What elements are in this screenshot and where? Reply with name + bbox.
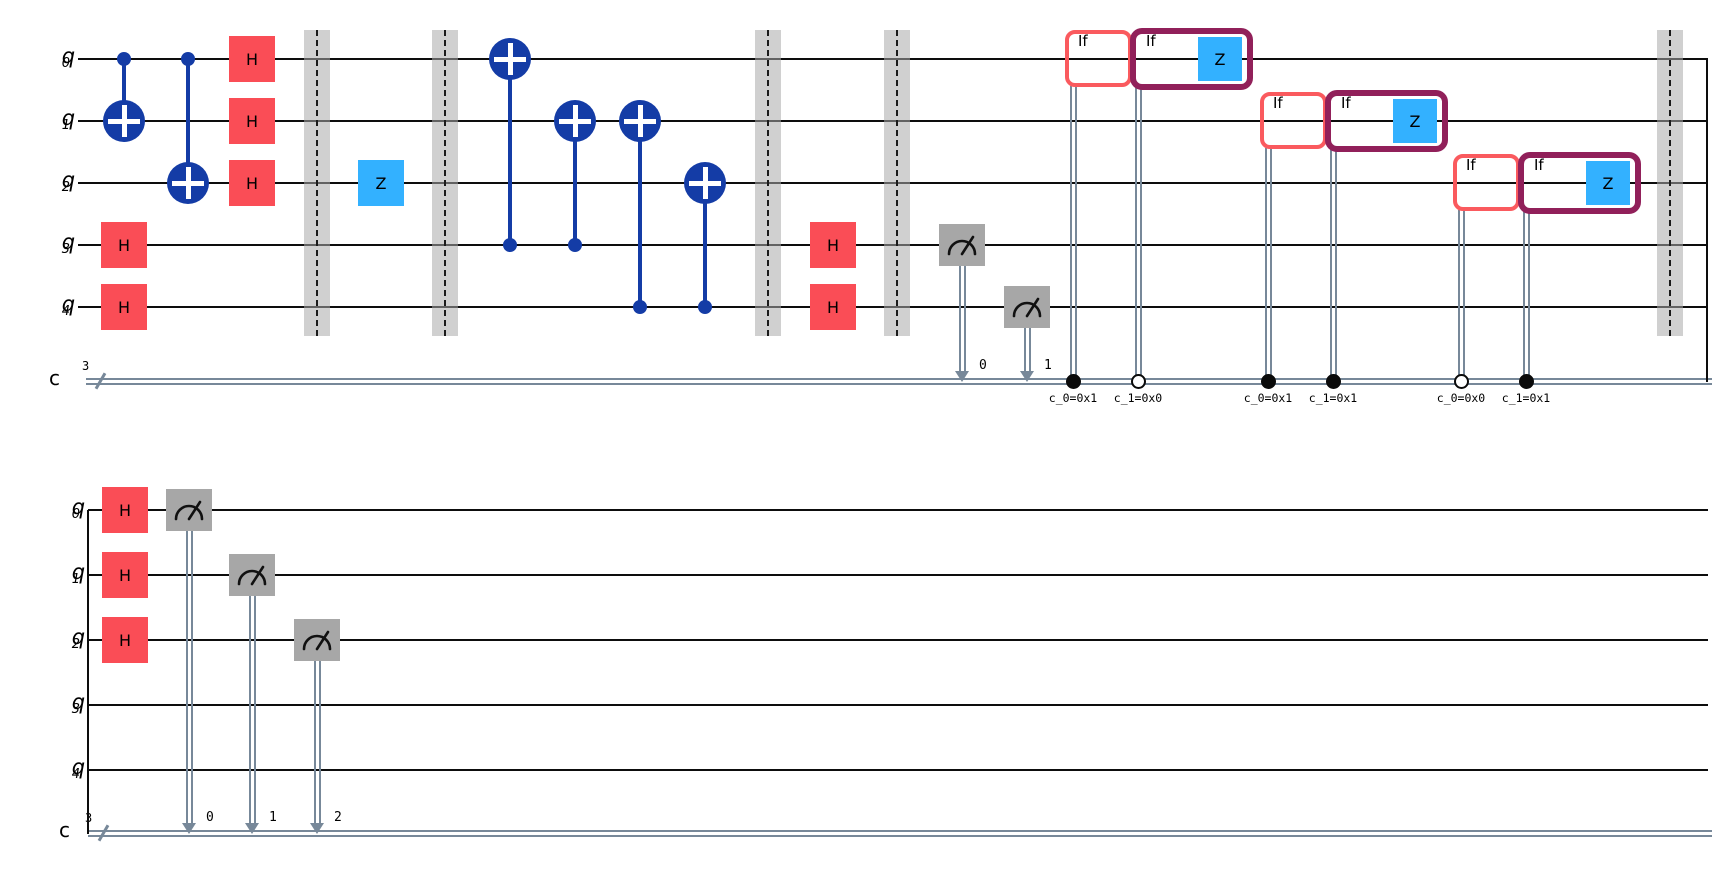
classical-label: c [12, 366, 60, 390]
measure-icon [229, 554, 275, 596]
measure-icon [1004, 286, 1050, 328]
measure-bit-label: 2 [334, 810, 342, 825]
cx-target-plus-v [638, 105, 643, 137]
classical-control-wire [1330, 150, 1337, 384]
if-box-outer [1260, 92, 1327, 149]
classical-label: c [22, 818, 70, 842]
if-label: If [1078, 32, 1088, 50]
barrier-dashed-line [1669, 30, 1671, 336]
cx-connector [508, 59, 513, 245]
qubit-label-sub: 1 [62, 118, 70, 133]
classical-control-wire [1523, 212, 1530, 384]
condition-label: c_0=0x1 [1049, 391, 1097, 405]
fold-line [87, 510, 89, 834]
condition-dot-filled [1519, 374, 1534, 389]
measure-gate [294, 619, 340, 661]
h-gate: H [229, 36, 275, 82]
measure-gate [1004, 286, 1050, 328]
cx-target [489, 38, 531, 80]
qubit-label-sub: 4 [62, 304, 70, 319]
measure-bit-label: 0 [979, 358, 987, 373]
qubit-label: q1 [12, 106, 70, 130]
barrier-dashed-line [896, 30, 898, 336]
cx-control-dot [503, 238, 517, 252]
measure-arrowhead [245, 823, 259, 834]
gate-letter: H [119, 566, 131, 585]
cx-control-dot [568, 238, 582, 252]
h-gate: H [102, 487, 148, 533]
measure-icon [939, 224, 985, 266]
qubit-label-sub: 2 [72, 637, 80, 652]
qubit-label: q1 [22, 560, 80, 584]
conditional-z-gate: Z [1393, 99, 1437, 143]
qubit-label-sub: 3 [72, 702, 80, 717]
measure-wire [249, 596, 256, 823]
measure-bit-label: 1 [269, 810, 277, 825]
gate-letter: H [246, 50, 258, 69]
h-gate: H [810, 222, 856, 268]
cx-target [684, 162, 726, 204]
gate-letter: Z [1215, 50, 1226, 69]
measure-bit-label: 1 [1044, 358, 1052, 373]
if-box-outer [1453, 154, 1520, 211]
gate-letter: Z [376, 174, 387, 193]
h-gate: H [102, 552, 148, 598]
h-gate: H [102, 617, 148, 663]
gate-letter: H [827, 298, 839, 317]
classical-control-wire [1265, 148, 1272, 384]
condition-dot-filled [1066, 374, 1081, 389]
h-gate: H [810, 284, 856, 330]
measure-bit-label: 0 [206, 810, 214, 825]
cx-target-plus-v [186, 167, 191, 199]
z-gate: Z [358, 160, 404, 206]
barrier-dashed-line [767, 30, 769, 336]
if-label: If [1534, 156, 1544, 174]
barrier-dashed-line [444, 30, 446, 336]
condition-label: c_1=0x0 [1114, 391, 1162, 405]
qubit-label: q3 [12, 230, 70, 254]
if-box-outer [1065, 30, 1132, 87]
qubit-label-sub: 0 [62, 56, 70, 71]
condition-label: c_1=0x1 [1502, 391, 1550, 405]
condition-dot-filled [1326, 374, 1341, 389]
gate-letter: Z [1603, 174, 1614, 193]
h-gate: H [101, 284, 147, 330]
condition-label: c_0=0x1 [1244, 391, 1292, 405]
barrier-dashed-line [316, 30, 318, 336]
qubit-label: q4 [12, 292, 70, 316]
measure-icon [294, 619, 340, 661]
qubit-label-sub: 2 [62, 180, 70, 195]
gate-letter: H [246, 112, 258, 131]
fold-line [1706, 59, 1708, 382]
measure-arrowhead [1020, 371, 1034, 382]
gate-letter: H [119, 501, 131, 520]
cx-connector [638, 121, 643, 307]
condition-label: c_0=0x0 [1437, 391, 1485, 405]
cx-target [554, 100, 596, 142]
measure-wire [186, 531, 193, 823]
measure-wire [1024, 328, 1031, 371]
measure-wire [314, 661, 321, 823]
classical-control-wire [1070, 86, 1077, 384]
cx-target-plus-v [508, 43, 513, 75]
cx-control-dot [633, 300, 647, 314]
qubit-label: q2 [12, 168, 70, 192]
measure-gate [229, 554, 275, 596]
qubit-label-sub: 3 [62, 242, 70, 257]
if-label: If [1146, 32, 1156, 50]
if-label: If [1273, 94, 1283, 112]
qubit-wire [88, 704, 1708, 706]
condition-dot-open [1131, 374, 1146, 389]
gate-letter: H [118, 298, 130, 317]
cx-control-dot [181, 52, 195, 66]
gate-letter: Z [1410, 112, 1421, 131]
qubit-label: q0 [22, 495, 80, 519]
cx-control-dot [117, 52, 131, 66]
qubit-label: q3 [22, 690, 80, 714]
if-label: If [1466, 156, 1476, 174]
measure-arrowhead [310, 823, 324, 834]
qubit-label-sub: 4 [72, 767, 80, 782]
qubit-label: q4 [22, 755, 80, 779]
quantum-circuit-figure: q0q1q2q3q4c3HHHHHZHH01Ifc_0=0x1IfZc_1=0x… [0, 0, 1722, 882]
qubit-wire [88, 574, 1708, 576]
cx-control-dot [698, 300, 712, 314]
condition-dot-open [1454, 374, 1469, 389]
cx-target [167, 162, 209, 204]
classical-wire [88, 830, 1712, 837]
qubit-label-sub: 1 [72, 572, 80, 587]
conditional-z-gate: Z [1198, 37, 1242, 81]
cx-target [619, 100, 661, 142]
qubit-label-sub: 0 [72, 507, 80, 522]
qubit-label: q2 [22, 625, 80, 649]
h-gate: H [229, 98, 275, 144]
cx-target-plus-v [122, 105, 127, 137]
gate-letter: H [827, 236, 839, 255]
gate-letter: H [246, 174, 258, 193]
cx-target-plus-v [703, 167, 708, 199]
measure-gate [166, 489, 212, 531]
gate-letter: H [118, 236, 130, 255]
condition-dot-filled [1261, 374, 1276, 389]
h-gate: H [229, 160, 275, 206]
conditional-z-gate: Z [1586, 161, 1630, 205]
qubit-label: q0 [12, 44, 70, 68]
condition-label: c_1=0x1 [1309, 391, 1357, 405]
measure-wire [959, 266, 966, 371]
h-gate: H [101, 222, 147, 268]
cx-target-plus-v [573, 105, 578, 137]
measure-arrowhead [182, 823, 196, 834]
measure-gate [939, 224, 985, 266]
classical-control-wire [1135, 88, 1142, 384]
measure-arrowhead [955, 371, 969, 382]
qubit-wire [88, 769, 1708, 771]
gate-letter: H [119, 631, 131, 650]
if-label: If [1341, 94, 1351, 112]
measure-icon [166, 489, 212, 531]
qubit-wire [88, 509, 1708, 511]
register-size-label: 3 [82, 359, 89, 373]
cx-target [103, 100, 145, 142]
classical-control-wire [1458, 210, 1465, 384]
